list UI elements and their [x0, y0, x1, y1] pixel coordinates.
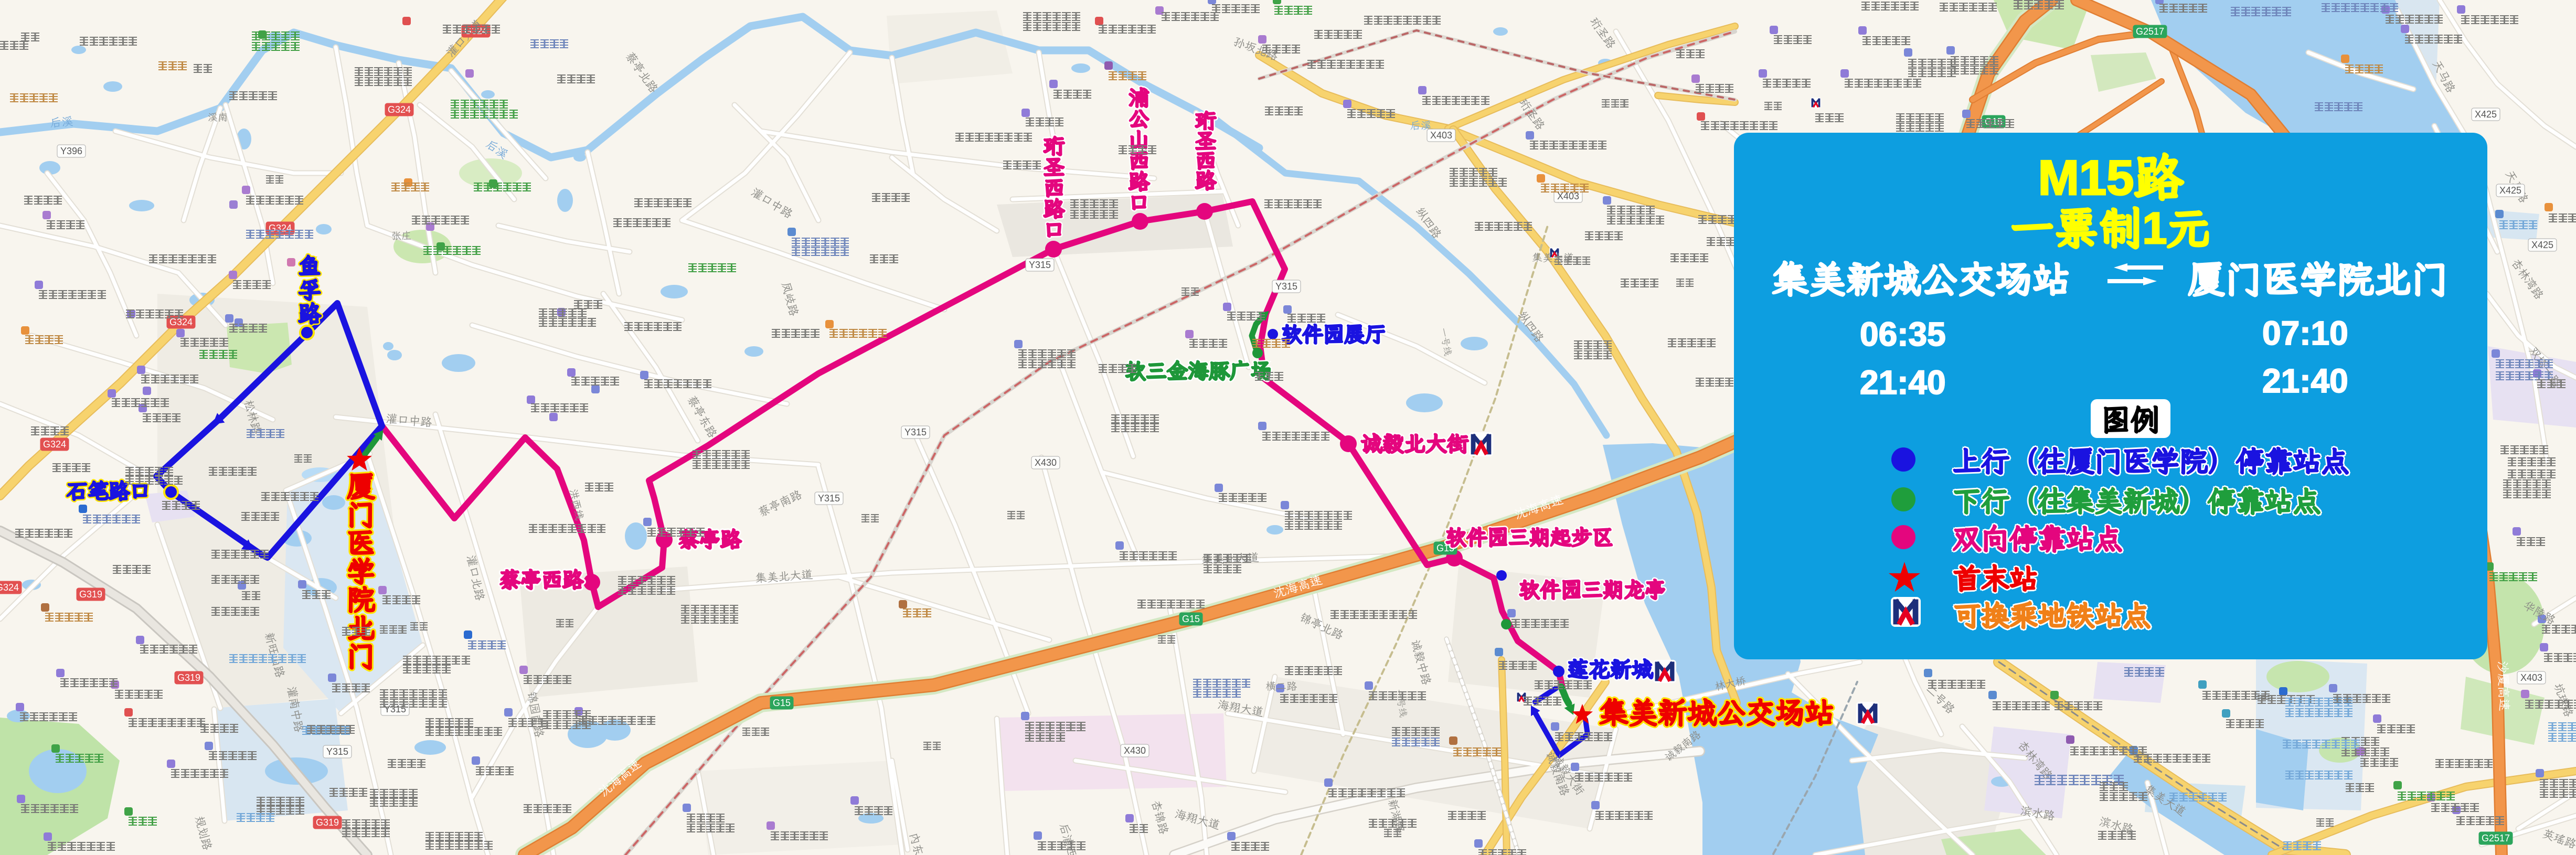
svg-text:X403: X403: [1430, 130, 1452, 141]
svg-text:集美新城公交场站: 集美新城公交场站: [1599, 692, 1834, 731]
svg-text:后溪: 后溪: [49, 113, 73, 131]
svg-text:Y315: Y315: [1275, 281, 1297, 292]
svg-text:G324: G324: [0, 582, 19, 593]
svg-text:蔡亭西路: 蔡亭西路: [499, 566, 583, 593]
svg-text:路: 路: [1195, 167, 1216, 194]
svg-text:Y315: Y315: [904, 427, 927, 437]
svg-text:G319: G319: [177, 672, 200, 683]
svg-text:G15: G15: [773, 698, 791, 708]
svg-text:口: 口: [1129, 189, 1149, 216]
svg-text:X425: X425: [2531, 240, 2553, 250]
svg-text:X403: X403: [2520, 672, 2542, 683]
svg-text:X430: X430: [1035, 457, 1057, 468]
svg-text:莲花新城: 莲花新城: [1567, 655, 1653, 683]
svg-text:G2517: G2517: [2136, 26, 2164, 37]
svg-text:张庄: 张庄: [391, 229, 411, 242]
svg-text:溪南: 溪南: [208, 111, 228, 124]
svg-text:G324: G324: [388, 104, 411, 115]
svg-text:沙厦高速: 沙厦高速: [2495, 660, 2513, 711]
svg-text:G324: G324: [43, 439, 66, 450]
svg-text:Y315: Y315: [818, 493, 840, 504]
svg-text:G319: G319: [79, 589, 102, 600]
svg-text:X425: X425: [2499, 185, 2521, 196]
svg-text:门: 门: [347, 637, 375, 675]
svg-text:G2517: G2517: [2482, 833, 2510, 843]
svg-text:G319: G319: [316, 817, 339, 828]
svg-text:路: 路: [299, 299, 321, 328]
svg-text:G15: G15: [1182, 614, 1200, 624]
svg-text:Y315: Y315: [326, 746, 348, 757]
svg-text:软三金海豚广场: 软三金海豚广场: [1125, 357, 1272, 384]
svg-text:口: 口: [1044, 216, 1065, 243]
svg-text:横二路: 横二路: [1265, 679, 1297, 693]
svg-text:软件园三期龙亭: 软件园三期龙亭: [1519, 576, 1666, 603]
svg-text:软件园三期起步区: 软件园三期起步区: [1445, 523, 1613, 551]
svg-text:Y396: Y396: [60, 146, 82, 156]
svg-text:X430: X430: [1124, 745, 1146, 756]
svg-text:Y315: Y315: [1029, 260, 1051, 270]
svg-text:诚毅北大街: 诚毅北大街: [1361, 429, 1468, 457]
svg-text:X425: X425: [2475, 109, 2497, 120]
